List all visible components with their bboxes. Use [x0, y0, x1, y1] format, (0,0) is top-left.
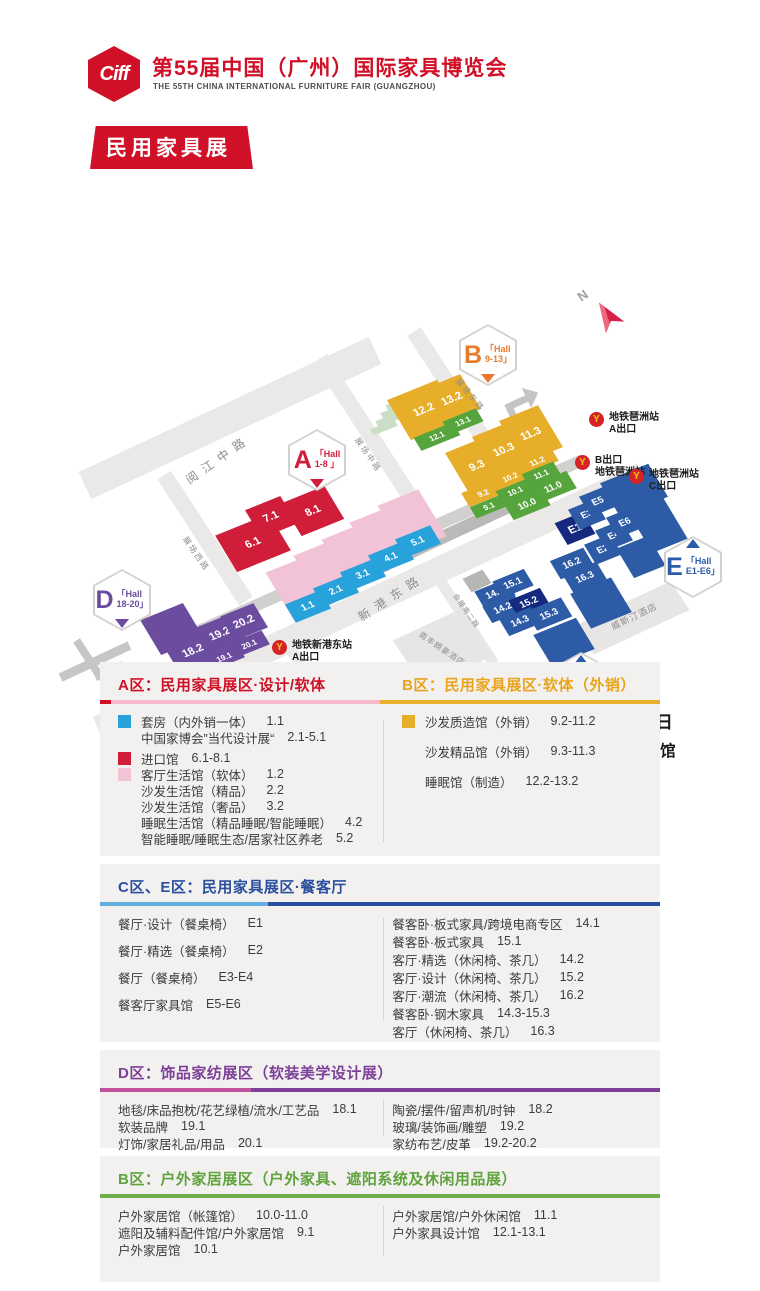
legend-item-hall: 14.3-15.3 — [497, 1006, 550, 1020]
legend-item: 客厅·精选（休闲椅、茶几）14.2 — [392, 951, 660, 967]
legend-item: 餐客卧·板式家具/跨境电商专区14.1 — [392, 915, 660, 931]
legend-item: 客厅·设计（休闲椅、茶几）15.2 — [392, 969, 660, 985]
legend-item-hall: 16.3 — [530, 1024, 554, 1038]
legend-item-hall: E2 — [248, 943, 263, 957]
legend-item-hall: 9.1 — [297, 1225, 314, 1239]
legend-panel-ce: C区、E区：民用家具展区·餐客厅 餐厅·设计（餐桌椅）E1餐厅·精选（餐桌椅）E… — [100, 864, 660, 1042]
legend-item-hall: 14.2 — [560, 952, 584, 966]
legend-item-hall: 20.1 — [238, 1136, 262, 1150]
legend-swatch-spacer — [118, 731, 131, 744]
legend-item-hall: 19.2-20.2 — [484, 1136, 537, 1150]
legend-item-label: 灯饰/家居礼品/用品 — [118, 1134, 225, 1153]
legend-item: 软装品牌19.1 — [118, 1118, 374, 1134]
legend-item-hall: 10.0-11.0 — [256, 1208, 308, 1222]
legend-item-hall: 5.2 — [336, 831, 353, 845]
legend-item-hall: 3.2 — [267, 799, 284, 813]
compass-needle-icon — [590, 296, 625, 333]
ciff-logo: Ciff — [88, 46, 140, 102]
legend-item-hall: 18.1 — [332, 1102, 356, 1116]
legend-item-label: 客厅（休闲椅、茶几） — [392, 1022, 517, 1041]
legend-item-label: 家纺布艺/皮革 — [392, 1134, 470, 1153]
metro-marker: Y地铁琶洲站C出口 — [629, 469, 699, 493]
legend-swatch-spacer — [118, 800, 131, 813]
column-divider — [383, 1206, 384, 1256]
legend-item: 餐客卧·钢木家具14.3-15.3 — [392, 1005, 660, 1021]
arrow-head — [522, 383, 543, 408]
column-divider — [383, 918, 384, 1020]
section-outdoor-title: B区：户外家居展区（户外家具、遮阳系统及休闲用品展） — [100, 1156, 660, 1189]
badge-hall-range: 「Hall 1-8 」 — [315, 450, 341, 470]
badge-hall-range: 「Hall 9-13」 — [485, 345, 512, 365]
fair-subtitle: THE 55TH CHINA INTERNATIONAL FURNITURE F… — [153, 82, 436, 91]
zone-badge-A: A「Hall 1-8 」 — [288, 429, 346, 491]
legend-item-hall: 12.2-13.2 — [526, 774, 579, 788]
legend-item: 户外家居馆/户外休闲馆11.1 — [392, 1207, 660, 1223]
badge-letter: D — [95, 586, 113, 615]
section-d-title: D区：饰品家纺展区（软装美学设计展） — [100, 1050, 660, 1083]
section-underline — [100, 700, 660, 704]
legend-item: 家纺布艺/皮革19.2-20.2 — [392, 1135, 660, 1151]
legend-item-label: 餐客卧·钢木家具 — [392, 1004, 484, 1023]
section-underline — [100, 1194, 660, 1198]
legend-item: 灯饰/家居礼品/用品20.1 — [118, 1135, 374, 1151]
zone-badge-E: E「Hall E1-E6」 — [664, 536, 722, 598]
legend-item-label: 沙发精品馆（外销） — [425, 742, 538, 761]
legend-item: 餐厅（餐桌椅）E3-E4 — [118, 969, 374, 985]
legend-item-label: 户外家具设计馆 — [392, 1223, 480, 1242]
zone-badge-B: B「Hall 9-13」 — [459, 324, 517, 386]
legend-item-label: 户外家居馆 — [118, 1240, 181, 1259]
legend-item-hall: 9.3-11.3 — [551, 744, 596, 758]
metro-label: 地铁琶洲站C出口 — [649, 469, 699, 493]
legend-panel-outdoor: B区：户外家居展区（户外家具、遮阳系统及休闲用品展） 户外家居馆（帐篷馆）10.… — [100, 1156, 660, 1282]
legend-item: 遮阳及辅料配件馆/户外家居馆9.1 — [118, 1224, 374, 1240]
metro-marker: Y地铁新港东站A出口 — [272, 640, 352, 664]
legend-item-hall: 11.1 — [534, 1208, 557, 1222]
legend-item-label: 客厅·精选（休闲椅、茶几） — [392, 950, 546, 969]
legend-item-label: 客厅·潮流（休闲椅、茶几） — [392, 986, 546, 1005]
badge-pointer — [310, 479, 324, 488]
legend-item: 餐厅·设计（餐桌椅）E1 — [118, 915, 374, 931]
legend-item-hall: 6.1-8.1 — [192, 751, 231, 765]
legend-item-hall: 16.2 — [560, 988, 584, 1002]
legend-item-hall: 15.1 — [497, 934, 521, 948]
badge-pointer — [481, 374, 495, 383]
legend-item-hall: 2.1-5.1 — [287, 730, 326, 744]
legend-item: 睡眠馆（制造）12.2-13.2 — [402, 773, 660, 789]
legend-item: 智能睡眠/睡眠生态/居家社区养老5.2 — [118, 830, 380, 846]
legend-item-label: 餐厅·精选（餐桌椅） — [118, 941, 235, 960]
legend-swatch-spacer — [402, 745, 415, 758]
legend-swatch — [118, 752, 131, 765]
legend-swatch-spacer — [402, 775, 415, 788]
legend-item: 沙发精品馆（外销）9.3-11.3 — [402, 743, 660, 759]
legend-item: 户外家具设计馆12.1-13.1 — [392, 1224, 660, 1240]
legend-item: 户外家居馆10.1 — [118, 1241, 374, 1257]
legend-item: 客厅·潮流（休闲椅、茶几）16.2 — [392, 987, 660, 1003]
ciff-logo-text: Ciff — [100, 63, 129, 86]
metro-icon: Y — [575, 455, 590, 470]
compass-n-label: N — [575, 287, 591, 305]
legend-item-hall: 1.1 — [267, 714, 284, 728]
zone-badge-D: D「Hall 18-20」 — [93, 569, 151, 631]
legend-panel-d: D区：饰品家纺展区（软装美学设计展） 地毯/床品抱枕/花艺绿植/流水/工艺品18… — [100, 1050, 660, 1148]
legend-item-label: 中国家博会”当代设计展“ — [141, 728, 274, 747]
legend-item-label: 餐客厅家具馆 — [118, 995, 193, 1014]
legend-swatch-spacer — [118, 784, 131, 797]
badge-pointer — [115, 619, 129, 628]
legend-item: 餐客厅家具馆E5-E6 — [118, 996, 374, 1012]
legend-item: 户外家居馆（帐篷馆）10.0-11.0 — [118, 1207, 374, 1223]
legend-item-hall: 4.2 — [345, 815, 362, 829]
legend-swatch-spacer — [118, 832, 131, 845]
legend-item: 陶瓷/摆件/留声机/时钟18.2 — [392, 1101, 660, 1117]
legend-item-hall: 9.2-11.2 — [551, 714, 596, 728]
legend-item-hall: 2.2 — [267, 783, 284, 797]
legend-item: 客厅（休闲椅、茶几）16.3 — [392, 1023, 660, 1039]
legend-item-label: 沙发质造馆（外销） — [425, 712, 538, 731]
badge-pointer — [686, 539, 700, 548]
legend-panel-a-b: A区：民用家具展区·设计/软体 套房（内外销一体）1.1中国家博会”当代设计展“… — [100, 662, 660, 856]
legend-item-label: 客厅·设计（休闲椅、茶几） — [392, 968, 546, 987]
legend-swatch — [402, 715, 415, 728]
fair-title: 第55届中国（广州）国际家具博览会 — [152, 52, 507, 82]
venue-map: 12.213.212.113.19.310.311.39.210.211.29.… — [0, 150, 760, 650]
legend-item-hall: E1 — [248, 916, 263, 930]
legend-item-hall: E5-E6 — [206, 997, 241, 1011]
column-divider — [383, 720, 384, 842]
badge-letter: E — [666, 553, 683, 582]
metro-label: 地铁琶洲站A出口 — [609, 412, 659, 436]
badge-hall-range: 「Hall 18-20」 — [117, 590, 149, 610]
section-b-title: B区：民用家具展区·软体（外销） — [384, 662, 660, 695]
legend-item-label: 睡眠馆（制造） — [425, 772, 513, 791]
legend-item-label: 智能睡眠/睡眠生态/居家社区养老 — [141, 829, 323, 848]
section-a-title: A区：民用家具展区·设计/软体 — [100, 662, 380, 695]
legend-item-hall: 15.2 — [560, 970, 584, 984]
legend-item: 沙发质造馆（外销）9.2-11.2 — [402, 713, 660, 729]
legend-item: 餐客卧·板式家具15.1 — [392, 933, 660, 949]
legend-item-hall: 10.1 — [194, 1242, 218, 1256]
legend-item-hall: 19.1 — [181, 1119, 205, 1133]
hall-block-8.1: 8.1 — [282, 486, 344, 536]
legend-item-label: 餐客卧·板式家具 — [392, 932, 484, 951]
legend-item-hall: 1.2 — [267, 767, 284, 781]
section-underline — [100, 1088, 660, 1092]
badge-hall-range: 「Hall E1-E6」 — [686, 557, 720, 577]
metro-icon: Y — [589, 412, 604, 427]
metro-icon: Y — [629, 469, 644, 484]
legend-swatch-spacer — [118, 816, 131, 829]
section-ce-title: C区、E区：民用家具展区·餐客厅 — [100, 864, 660, 897]
badge-letter: B — [464, 341, 482, 370]
legend-item-hall: 18.2 — [528, 1102, 552, 1116]
legend-item-label: 餐厅（餐桌椅） — [118, 968, 206, 987]
legend-item: 中国家博会”当代设计展“2.1-5.1 — [118, 729, 380, 745]
legend-item: 玻璃/装饰画/雕塑19.2 — [392, 1118, 660, 1134]
column-divider — [383, 1100, 384, 1136]
metro-label: 地铁新港东站A出口 — [292, 640, 352, 664]
legend-item-label: 餐厅·设计（餐桌椅） — [118, 914, 235, 933]
metro-marker: Y地铁琶洲站A出口 — [589, 412, 659, 436]
legend-item-hall: 14.1 — [576, 916, 600, 930]
legend-swatch — [118, 715, 131, 728]
poster: Ciff 第55届中国（广州）国际家具博览会 THE 55TH CHINA IN… — [0, 0, 760, 1291]
legend-item-hall: 19.2 — [500, 1119, 524, 1133]
section-underline — [100, 902, 660, 906]
legend-item-hall: E3-E4 — [219, 970, 254, 984]
legend-item: 餐厅·精选（餐桌椅）E2 — [118, 942, 374, 958]
legend-item-label: 餐客卧·板式家具/跨境电商专区 — [392, 914, 562, 933]
badge-letter: A — [294, 446, 312, 475]
legend-item: 地毯/床品抱枕/花艺绿植/流水/工艺品18.1 — [118, 1101, 374, 1117]
metro-icon: Y — [272, 640, 287, 655]
legend-item-hall: 12.1-13.1 — [493, 1225, 546, 1239]
legend-swatch — [118, 768, 131, 781]
